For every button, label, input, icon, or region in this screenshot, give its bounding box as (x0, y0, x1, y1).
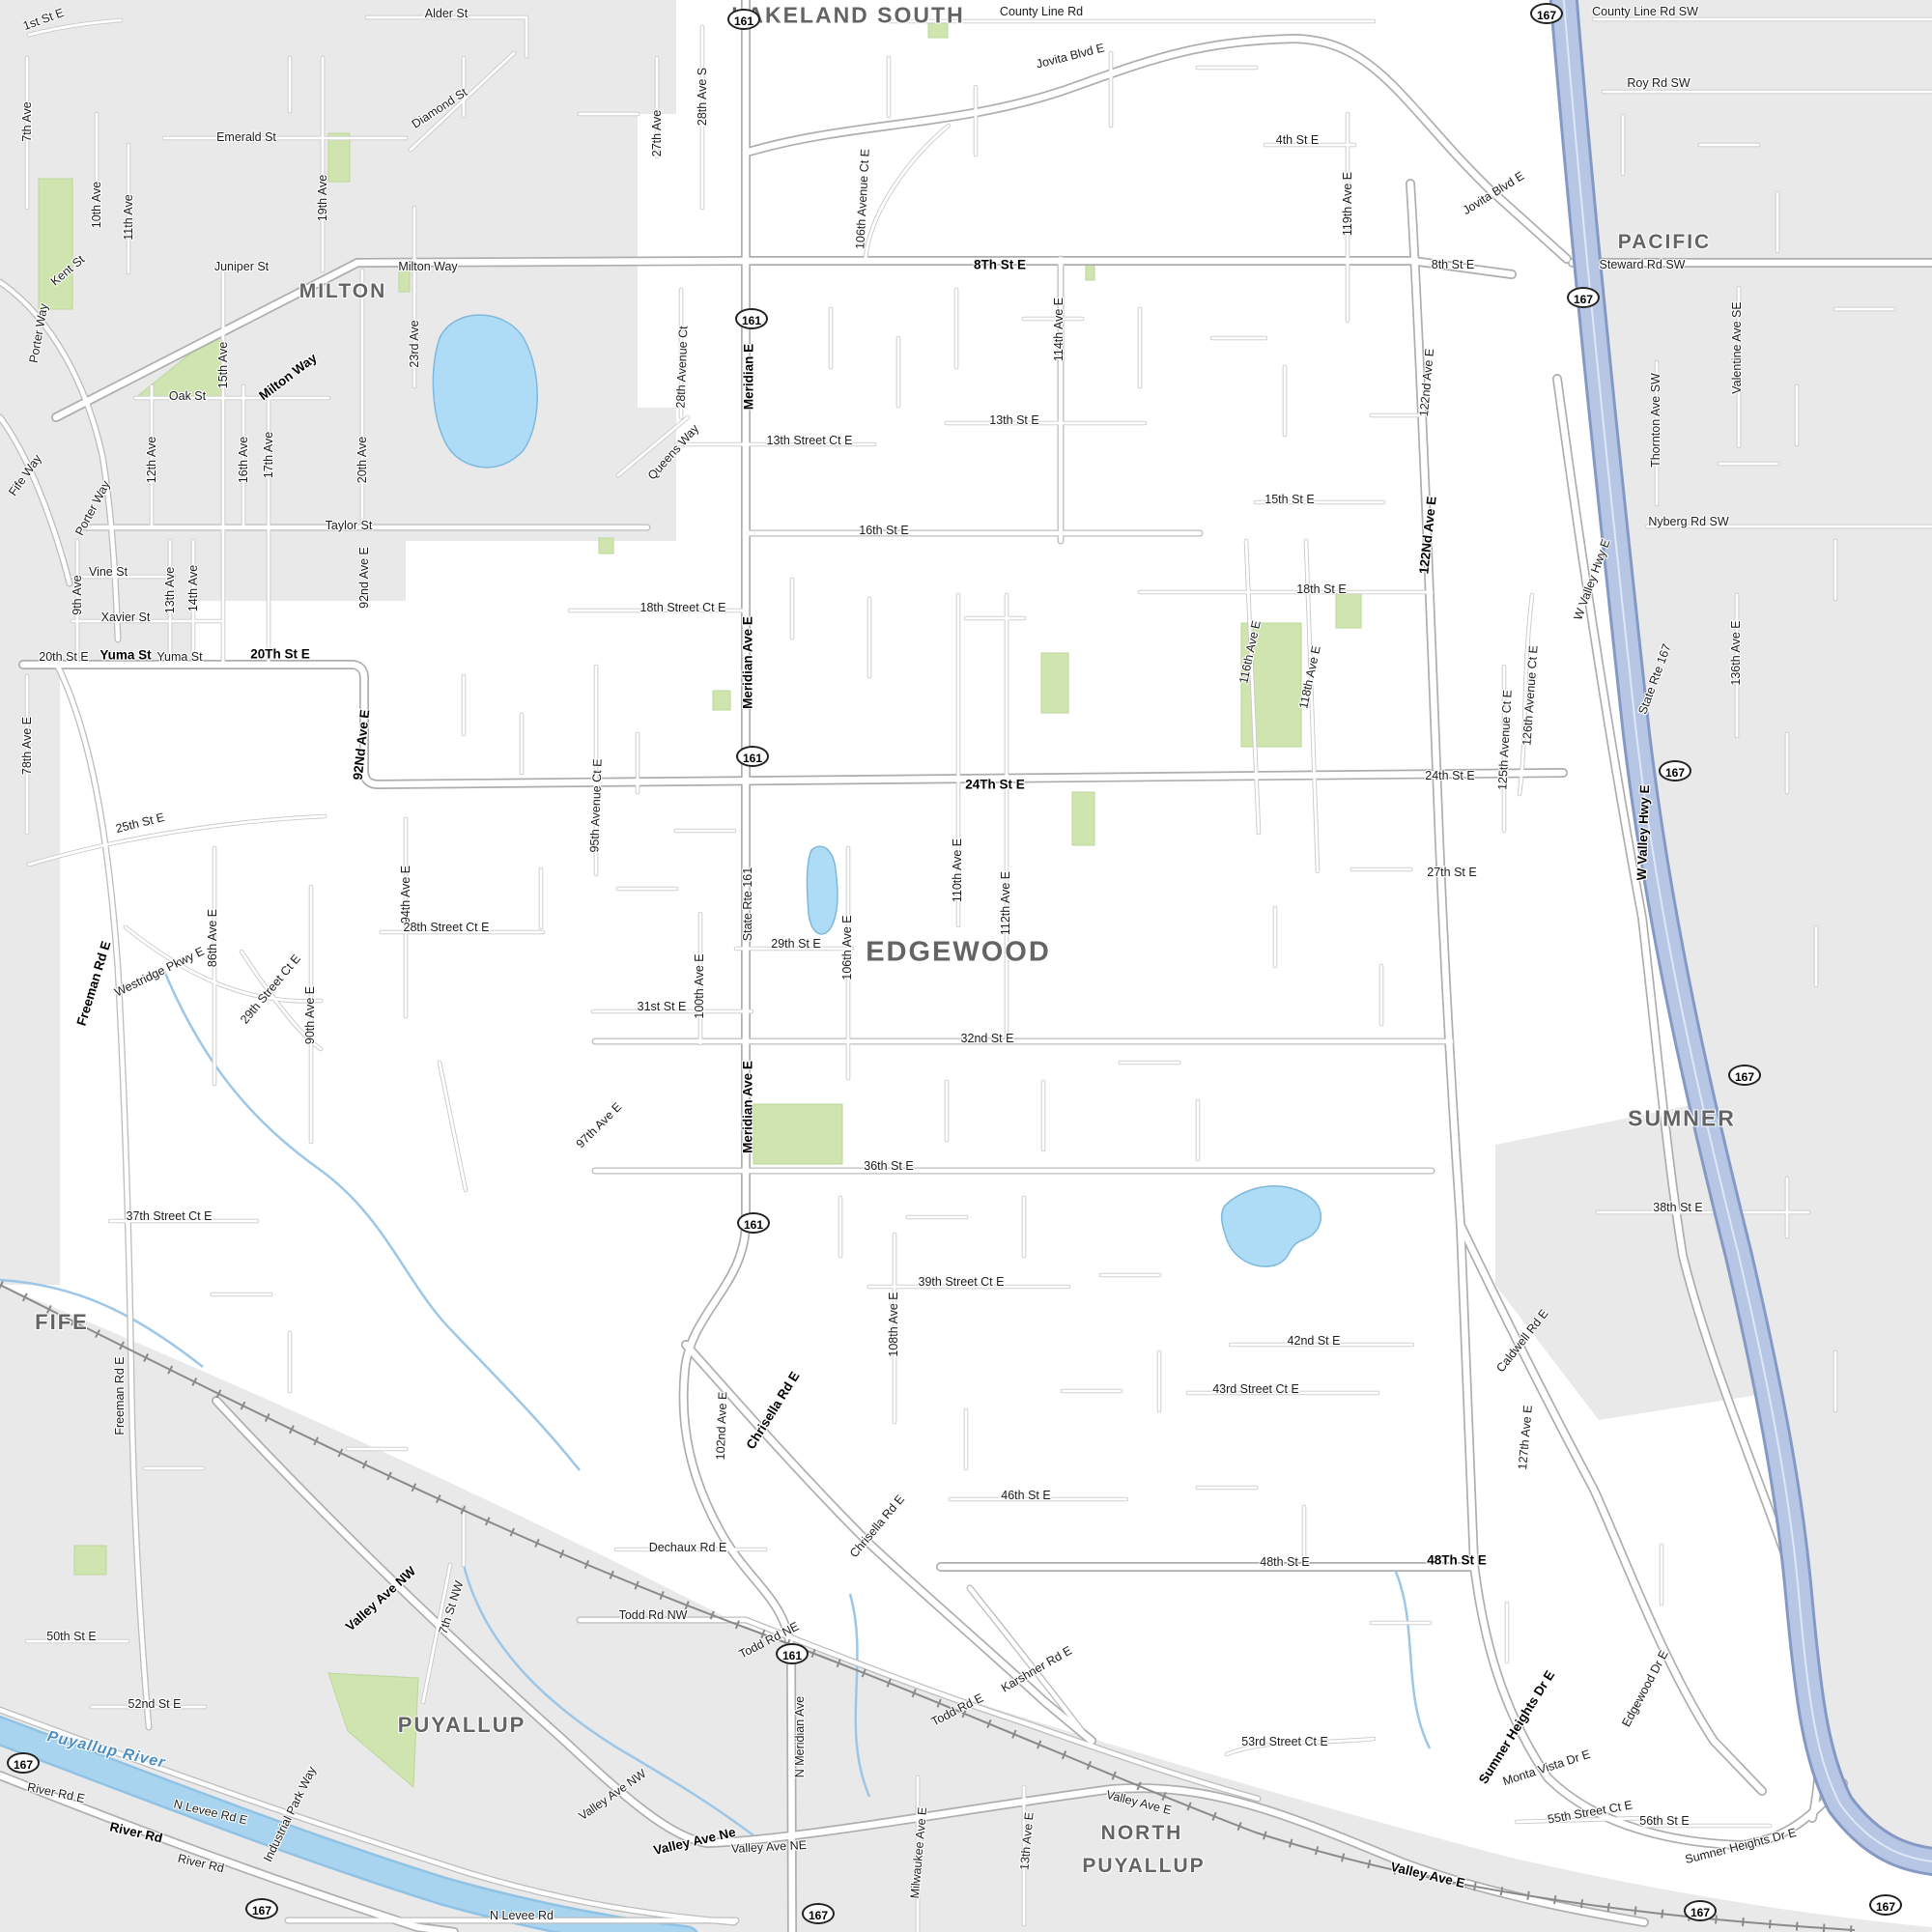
road-label: 28th Ave S (696, 68, 709, 126)
road-label: Milwaukee Ave E (908, 1806, 929, 1899)
road-label: Roy Rd SW (1627, 76, 1690, 90)
road-label: River Rd (177, 1852, 226, 1876)
road-label: Milton Way (256, 351, 320, 404)
map-canvas[interactable]: 1st St E7th AveAlder StDiamond StEmerald… (0, 0, 1932, 1932)
road-label: 28th Street Ct E (404, 921, 490, 934)
road-label: Vine St (89, 565, 128, 579)
road-label: 102nd Ave E (714, 1391, 729, 1460)
road-label: Thornton Ave SW (1649, 373, 1662, 468)
road-label: W Valley Hwy E (1571, 537, 1612, 621)
road-label: 16th St E (859, 524, 908, 537)
road-label: Kent St (48, 252, 87, 288)
road-label: 19th Ave (316, 175, 329, 221)
road-label: 17th Ave (262, 432, 275, 478)
road-label: 78th Ave E (20, 717, 34, 775)
road-label: Yuma St (156, 650, 202, 664)
road-label: 122nd Ave E (1417, 348, 1436, 417)
road-label: Meridian Ave E (741, 616, 755, 709)
road-label: 7th St NW (437, 1579, 467, 1636)
route-shield-161: 161 (776, 1643, 809, 1664)
road-label: 9th Ave (71, 575, 84, 614)
road-label: 116th Ave E (1236, 619, 1263, 685)
road-label: 10th Ave (90, 182, 103, 228)
road-label: 56th St E (1639, 1814, 1689, 1828)
road-label: 112th Ave E (999, 871, 1012, 935)
road-label: Taylor St (326, 519, 373, 532)
road-label: 7th Ave (20, 101, 34, 141)
road-label: 29th St E (771, 937, 820, 951)
road-label: 8th St E (1432, 258, 1474, 271)
road-label: Porter Way (72, 478, 112, 537)
road-label: Todd Rd E (929, 1691, 985, 1729)
road-label: Alder St (425, 7, 468, 20)
road-label: 8Th St E (974, 258, 1026, 272)
road-label: 50th St E (46, 1630, 96, 1643)
road-label: 20th Ave (355, 437, 369, 483)
road-label: County Line Rd SW (1592, 5, 1698, 18)
road-label: Valley Ave E (1389, 1860, 1466, 1890)
road-label: 90th Ave E (303, 986, 317, 1044)
road-label: 100th Ave E (693, 953, 706, 1018)
city-label: PACIFIC (1618, 231, 1711, 254)
road-label: Todd Rd NW (619, 1608, 688, 1622)
road-label: Porter Way (27, 302, 51, 364)
route-shield-161: 161 (737, 1212, 770, 1234)
road-label: State Rte 161 (741, 867, 754, 941)
road-label: Caldwell Rd E (1493, 1307, 1550, 1375)
city-label: NORTH (1101, 1822, 1183, 1845)
route-shield-167: 167 (1530, 3, 1563, 24)
road-label: 20Th St E (250, 647, 310, 662)
road-label: Chrisella Rd E (847, 1492, 907, 1560)
road-label: Fife Way (6, 452, 43, 498)
road-label: Valley Ave NE (731, 1838, 808, 1856)
road-label: 16th Ave (237, 437, 250, 483)
road-label: 110th Ave E (951, 838, 964, 902)
road-label: Karshner Rd E (999, 1643, 1074, 1694)
road-label: 136th Ave E (1729, 620, 1743, 685)
city-label: LAKELAND SOUTH (731, 3, 964, 29)
road-label: Valley Ave Ne (652, 1825, 737, 1858)
water-label: Puyallup River (45, 1728, 167, 1773)
road-label: 119th Ave E (1341, 172, 1354, 236)
road-label: 28th Avenue Ct (674, 326, 691, 409)
road-label: 48th St E (1260, 1555, 1309, 1569)
road-label: 114th Ave E (1052, 298, 1065, 361)
road-label: 38th St E (1653, 1201, 1702, 1214)
road-label: Freeman Rd E (74, 939, 114, 1027)
road-label: 126th Avenue Ct E (1520, 645, 1540, 747)
road-label: Xavier St (101, 611, 151, 624)
road-label: 13th Ave (163, 567, 177, 613)
road-label: Queens Way (645, 422, 701, 483)
road-label: 48Th St E (1427, 1553, 1487, 1568)
road-label: County Line Rd (1000, 5, 1083, 18)
road-label: Emerald St (216, 130, 276, 144)
road-label: State Rte 167 (1635, 642, 1673, 717)
road-label: 122Nd Ave E (1416, 496, 1438, 575)
route-shield-161: 161 (727, 9, 760, 30)
road-label: 1st St E (21, 6, 66, 33)
road-label: 24th St E (1425, 769, 1474, 782)
route-shield-167: 167 (1728, 1065, 1761, 1086)
road-label: 92Nd Ave E (351, 709, 373, 781)
road-label: Valley Ave NW (577, 1767, 649, 1823)
road-label: N Levee Rd (490, 1909, 554, 1922)
road-label: 52nd St E (128, 1697, 182, 1711)
road-label: 13th Ave E (1017, 1811, 1036, 1870)
road-label: 43rd Street Ct E (1212, 1382, 1299, 1396)
road-label: Edgewood Dr E (1619, 1648, 1670, 1729)
road-label: Westridge Pkwy E (112, 945, 206, 1000)
road-label: Jovita Blvd E (1035, 41, 1106, 71)
road-label: Sumner Heights Dr E (1684, 1826, 1798, 1866)
road-label: Valentine Ave SE (1730, 301, 1744, 393)
road-label: 27th Ave (650, 110, 664, 156)
route-shield-167: 167 (7, 1752, 40, 1774)
city-label: MILTON (299, 280, 387, 303)
road-label: 4th St E (1276, 133, 1319, 147)
road-label: 14th Ave (186, 565, 200, 611)
road-label: 24Th St E (965, 778, 1025, 792)
road-label: 127th Ave E (1516, 1405, 1535, 1470)
road-label: Oak St (169, 389, 206, 403)
road-label: Milton Way (398, 260, 457, 273)
city-label: SUMNER (1628, 1106, 1736, 1132)
road-label: 106th Avenue Ct E (853, 149, 871, 250)
labels-layer: 1st St E7th AveAlder StDiamond StEmerald… (0, 0, 1932, 1932)
road-label: Meridian E (742, 344, 756, 410)
road-label: N Levee Rd E (173, 1797, 249, 1827)
road-label: 108th Ave E (887, 1292, 900, 1356)
road-label: 95th Avenue Ct E (587, 758, 604, 853)
road-label: 20th St E (39, 650, 88, 664)
road-label: 13th St E (989, 413, 1038, 427)
road-label: Industrial Park Way (261, 1764, 319, 1863)
road-label: 53rd Street Ct E (1241, 1735, 1328, 1748)
road-label: 12th Ave (145, 437, 158, 483)
road-label: 37th Street Ct E (127, 1209, 213, 1223)
road-label: Nyberg Rd SW (1648, 515, 1728, 528)
road-label: 31st St E (638, 1000, 687, 1013)
road-label: Valley Ave E (1105, 1788, 1173, 1817)
road-label: 94th Ave E (399, 866, 412, 923)
road-label: 32nd St E (961, 1032, 1014, 1045)
road-label: 29th Street Ct E (238, 952, 303, 1026)
road-label: Diamond St (410, 85, 469, 130)
road-label: 15th Ave (216, 342, 230, 388)
road-label: 36th St E (864, 1159, 913, 1173)
road-label: 118th Ave E (1296, 644, 1322, 710)
road-label: Yuma St (99, 648, 151, 663)
road-label: 18th St E (1296, 582, 1346, 596)
road-label: 11th Ave (122, 194, 135, 241)
road-label: 13th Street Ct E (767, 434, 853, 447)
road-label: W Valley Hwy E (1634, 784, 1652, 881)
route-shield-167: 167 (245, 1898, 278, 1919)
road-label: Chrisella Rd E (743, 1369, 802, 1452)
road-label: 86th Ave E (206, 909, 219, 967)
road-label: 25th St E (114, 810, 165, 836)
city-label: PUYALLUP (1082, 1855, 1205, 1878)
road-label: Meridian Ave E (741, 1061, 755, 1153)
road-label: 42nd St E (1288, 1334, 1341, 1348)
city-label: FIFE (35, 1310, 89, 1335)
route-shield-167: 167 (1684, 1900, 1717, 1921)
road-label: Jovita Blvd E (1461, 169, 1527, 217)
road-label: 97th Ave E (574, 1100, 625, 1151)
road-label: Monta Vista Dr E (1501, 1747, 1592, 1788)
road-label: 125th Avenue Ct E (1495, 690, 1514, 791)
road-label: 46th St E (1001, 1489, 1050, 1502)
road-label: 39th Street Ct E (919, 1275, 1005, 1289)
road-label: Dechaux Rd E (649, 1541, 727, 1554)
road-label: River Rd E (26, 1780, 86, 1805)
road-label: Freeman Rd E (113, 1356, 127, 1435)
route-shield-161: 161 (735, 308, 768, 329)
road-label: 27th St E (1427, 866, 1476, 879)
road-label: Juniper St (214, 260, 269, 273)
road-label: 55th Street Ct E (1547, 1798, 1634, 1826)
route-shield-167: 167 (1869, 1894, 1902, 1916)
road-label: 18th Street Ct E (640, 601, 726, 614)
route-shield-167: 167 (1659, 760, 1691, 781)
city-label: PUYALLUP (398, 1713, 526, 1738)
road-label: 23rd Ave (408, 320, 421, 367)
road-label: Steward Rd SW (1600, 258, 1686, 271)
road-label: 92nd Ave E (357, 547, 371, 609)
road-label: N Meridian Ave (793, 1696, 807, 1778)
route-shield-167: 167 (1567, 287, 1600, 308)
road-label: Valley Ave NW (343, 1564, 418, 1634)
route-shield-161: 161 (736, 746, 769, 767)
road-label: River Rd (108, 1819, 163, 1845)
road-label: 106th Ave E (840, 915, 854, 980)
road-label: 15th St E (1264, 493, 1314, 506)
city-label: EDGEWOOD (866, 937, 1051, 969)
route-shield-167: 167 (802, 1903, 835, 1924)
